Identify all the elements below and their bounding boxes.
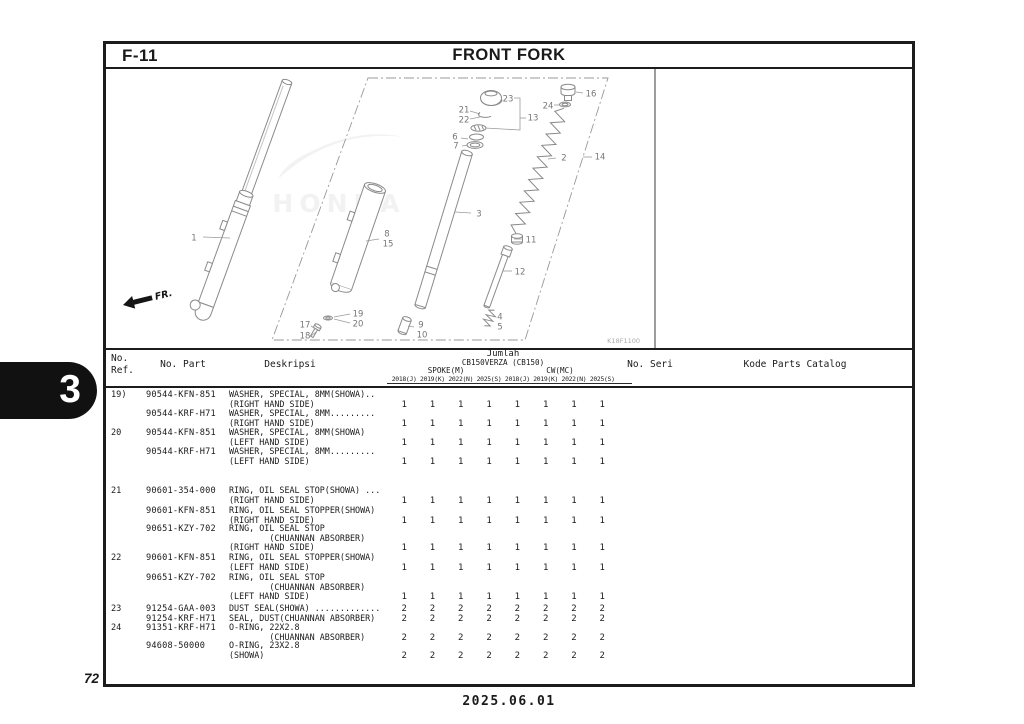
section-tab-number: 3 — [59, 362, 81, 418]
callout-16: 16 — [586, 90, 597, 100]
year-column-label: 2025(S) — [475, 375, 503, 383]
part-description: O-RING, 23X2.8 (SHOWA) — [229, 641, 300, 660]
quantity-value: 1 — [390, 496, 418, 506]
year-column-label: 2022(N) — [560, 375, 588, 383]
quantity-value: 2 — [503, 604, 531, 614]
quantity-value: 1 — [588, 592, 616, 602]
part-number: 90544-KFN-851 — [146, 428, 216, 438]
damper-rod — [482, 245, 513, 309]
part-description: WASHER, SPECIAL, 8MM......... (RIGHT HAN… — [229, 409, 375, 428]
callout-leader-2 — [548, 158, 556, 159]
quantity-value: 2 — [475, 604, 503, 614]
quantity-value: 1 — [475, 496, 503, 506]
quantity-value: 1 — [588, 457, 616, 467]
quantity-value: 1 — [390, 563, 418, 573]
col-ref-label-1: No. — [111, 353, 128, 364]
quantity-value: 1 — [560, 592, 588, 602]
quantity-value: 2 — [503, 651, 531, 661]
catalog-page: F-11 FRONT FORK HONDA — [103, 41, 915, 687]
ref-number: 23 — [111, 604, 121, 614]
part-description: RING, OIL SEAL STOP(SHOWA) ... (RIGHT HA… — [229, 486, 380, 505]
quantity-value: 1 — [418, 543, 446, 553]
quantity-value: 1 — [588, 563, 616, 573]
quantity-value: 1 — [418, 496, 446, 506]
ref-number: 21 — [111, 486, 121, 496]
quantity-value: 1 — [503, 543, 531, 553]
quantity-value: 1 — [560, 543, 588, 553]
callout-leader-21 — [470, 111, 480, 114]
quantity-value: 1 — [447, 592, 475, 602]
col-kode-label: Kode Parts Catalog — [744, 359, 847, 370]
col-part-label: No. Part — [160, 359, 206, 370]
quantity-value: 1 — [447, 496, 475, 506]
callout-4: 4 — [497, 313, 502, 323]
quantity-value: 1 — [503, 457, 531, 467]
watermark-text: HONDA — [272, 189, 405, 218]
quantity-value: 1 — [503, 563, 531, 573]
oil-lock-piece — [397, 316, 412, 336]
variant-cw-label: CW(MC) — [546, 366, 573, 375]
part-description: WASHER, SPECIAL, 8MM(SHOWA).. (RIGHT HAN… — [229, 390, 375, 409]
table-header: No. Ref. No. Part Deskripsi Jumlah CB150… — [106, 348, 912, 388]
part-description: RING, OIL SEAL STOP (CHUANNAN ABSORBER) … — [229, 573, 365, 602]
callout-5: 5 — [497, 323, 502, 333]
variant-spoke-label: SPOKE(M) — [428, 366, 465, 375]
callout-10: 10 — [417, 331, 428, 341]
quantity-value: 1 — [503, 496, 531, 506]
part-number: 90544-KRF-H71 — [146, 409, 216, 419]
callout-20: 20 — [353, 320, 364, 330]
callout-24: 24 — [543, 102, 554, 112]
quantity-value: 1 — [588, 496, 616, 506]
callout-19: 19 — [353, 310, 364, 320]
col-ref-label-2: Ref. — [111, 365, 134, 376]
part-description: WASHER, SPECIAL, 8MM......... (LEFT HAND… — [229, 447, 375, 466]
quantity-value: 1 — [390, 457, 418, 467]
callout-17: 17 — [300, 321, 311, 331]
year-column-label: 2019(K) — [532, 375, 560, 383]
fork-springs — [484, 108, 565, 326]
quantity-value: 1 — [532, 592, 560, 602]
quantity-value: 2 — [447, 651, 475, 661]
quantity-value: 1 — [418, 592, 446, 602]
quantity-value: 2 — [588, 604, 616, 614]
title-bar: F-11 FRONT FORK — [106, 44, 912, 69]
part-number: 90544-KFN-851 — [146, 390, 216, 400]
quantity-value: 2 — [418, 604, 446, 614]
model-label: CB150VERZA (CB150) — [462, 358, 544, 367]
ref-number: 20 — [111, 428, 121, 438]
part-number: 90601-354-000 — [146, 486, 216, 496]
quantity-value: 1 — [475, 592, 503, 602]
callout-15: 15 — [383, 240, 394, 250]
table-row: 94608-50000O-RING, 23X2.8 (SHOWA)2222222… — [106, 641, 912, 675]
fork-cap — [481, 91, 503, 106]
quantity-value: 1 — [532, 496, 560, 506]
section-code: F-11 — [122, 46, 158, 66]
year-column-label: 2025(S) — [588, 375, 616, 383]
callout-7: 7 — [453, 142, 458, 152]
quantity-value: 2 — [532, 604, 560, 614]
quantity-value: 1 — [532, 543, 560, 553]
table-row: 90651-KZY-702RING, OIL SEAL STOP (CHUANN… — [106, 573, 912, 607]
main-spring — [511, 108, 565, 233]
quantity-value: 2 — [532, 651, 560, 661]
oil-seal-stack — [467, 113, 491, 149]
quantity-value: 1 — [447, 563, 475, 573]
year-column-label: 2018(J) — [390, 375, 418, 383]
page-number: 72 — [84, 671, 99, 686]
quantity-value: 2 — [588, 651, 616, 661]
quantity-value: 1 — [532, 563, 560, 573]
sealing-washer — [324, 316, 333, 320]
qty-underline — [387, 383, 632, 384]
callout-22: 22 — [459, 116, 470, 126]
part-number: 94608-50000 — [146, 641, 205, 651]
callout-2: 2 — [561, 154, 566, 164]
quantity-value: 1 — [390, 543, 418, 553]
part-number: 90601-KFN-851 — [146, 553, 216, 563]
quantity-value: 2 — [560, 651, 588, 661]
quantity-value: 2 — [390, 651, 418, 661]
callout-11: 11 — [526, 236, 537, 246]
fork-tube — [414, 149, 473, 310]
callout-12: 12 — [515, 268, 526, 278]
quantity-value: 1 — [447, 457, 475, 467]
quantity-value: 1 — [532, 457, 560, 467]
quantity-value: 1 — [560, 457, 588, 467]
callout-8: 8 — [384, 230, 389, 240]
quantity-value: 1 — [475, 457, 503, 467]
year-column-label: 2019(K) — [418, 375, 446, 383]
quantity-value: 2 — [475, 651, 503, 661]
quantity-value: 2 — [390, 604, 418, 614]
ref-number: 24 — [111, 623, 121, 633]
year-column-label: 2022(N) — [447, 375, 475, 383]
fr-label: FR. — [154, 288, 174, 303]
callout-leader-22 — [470, 117, 480, 119]
part-description: RING, OIL SEAL STOPPER(SHOWA) (LEFT HAND… — [229, 553, 375, 572]
callout-14: 14 — [595, 153, 606, 163]
col-desc-label: Deskripsi — [264, 359, 315, 370]
quantity-value: 1 — [418, 563, 446, 573]
quantity-value: 2 — [447, 604, 475, 614]
quantity-value: 1 — [418, 457, 446, 467]
table-row: 90544-KRF-H71WASHER, SPECIAL, 8MM.......… — [106, 447, 912, 481]
honda-watermark: HONDA — [272, 134, 405, 218]
table-body: 19)90544-KFN-851WASHER, SPECIAL, 8MM(SHO… — [106, 388, 912, 684]
part-number: 90601-KFN-851 — [146, 506, 216, 516]
page-title: FRONT FORK — [452, 46, 565, 65]
part-description: WASHER, SPECIAL, 8MM(SHOWA) (LEFT HAND S… — [229, 428, 365, 447]
quantity-value: 1 — [503, 592, 531, 602]
case-bolt — [309, 323, 322, 339]
fr-direction-arrow: FR. — [121, 286, 173, 311]
quantity-value: 2 — [560, 604, 588, 614]
callout-13: 13 — [528, 114, 539, 124]
callout-18: 18 — [300, 332, 311, 342]
callout-23: 23 — [503, 95, 514, 105]
quantity-value: 1 — [475, 543, 503, 553]
part-number: 90651-KZY-702 — [146, 573, 216, 583]
fork-bolt-assembly — [561, 84, 575, 100]
date-footer: 2025.06.01 — [103, 694, 915, 709]
quantity-value: 1 — [447, 543, 475, 553]
ref-number: 22 — [111, 553, 121, 563]
part-number: 90544-KRF-H71 — [146, 447, 216, 457]
callout-leader-3 — [455, 212, 471, 213]
part-description: RING, OIL SEAL STOP (CHUANNAN ABSORBER) … — [229, 524, 365, 553]
callout-leader-6 — [461, 138, 468, 139]
callout-1: 1 — [191, 234, 196, 244]
rebound-spring — [484, 310, 496, 326]
callout-leader-20 — [334, 319, 350, 323]
quantity-value: 1 — [560, 496, 588, 506]
callout-21: 21 — [459, 106, 470, 116]
callout-3: 3 — [476, 210, 481, 220]
part-number: 91254-GAA-003 — [146, 604, 216, 614]
parts-diagram: HONDA — [106, 69, 912, 348]
quantity-value: 2 — [418, 651, 446, 661]
part-number: 90651-KZY-702 — [146, 524, 216, 534]
quantity-value: 1 — [560, 563, 588, 573]
oring-washer — [560, 102, 571, 107]
quantity-value: 1 — [588, 543, 616, 553]
callout-9: 9 — [418, 321, 423, 331]
quantity-value: 1 — [475, 563, 503, 573]
section-tab: 3 — [0, 362, 97, 419]
col-seri-label: No. Seri — [627, 359, 673, 370]
part-number: 91351-KRF-H71 — [146, 623, 216, 633]
year-column-label: 2018(J) — [503, 375, 531, 383]
diagram-code: K18F1100 — [607, 337, 640, 345]
callout-leader-19 — [334, 314, 350, 317]
quantity-value: 1 — [390, 592, 418, 602]
ref-number: 19) — [111, 390, 127, 400]
callout-leader-16 — [576, 92, 583, 93]
